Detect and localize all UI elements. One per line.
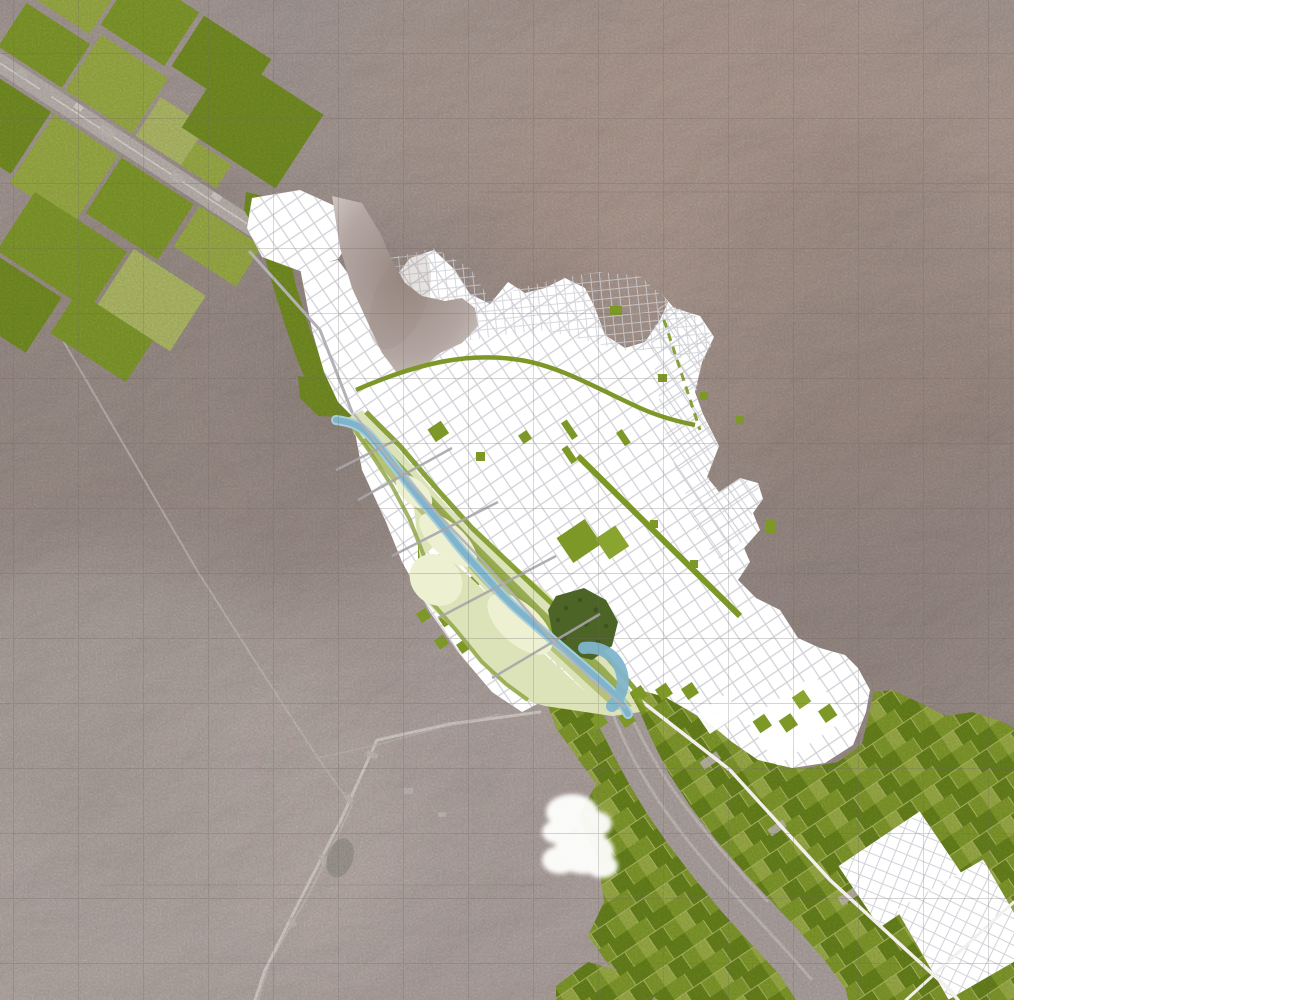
reference-grid bbox=[0, 0, 1014, 1000]
masterplan-map bbox=[0, 0, 1014, 1000]
page-margin bbox=[1014, 0, 1298, 1000]
screenshot-canvas bbox=[0, 0, 1298, 1000]
